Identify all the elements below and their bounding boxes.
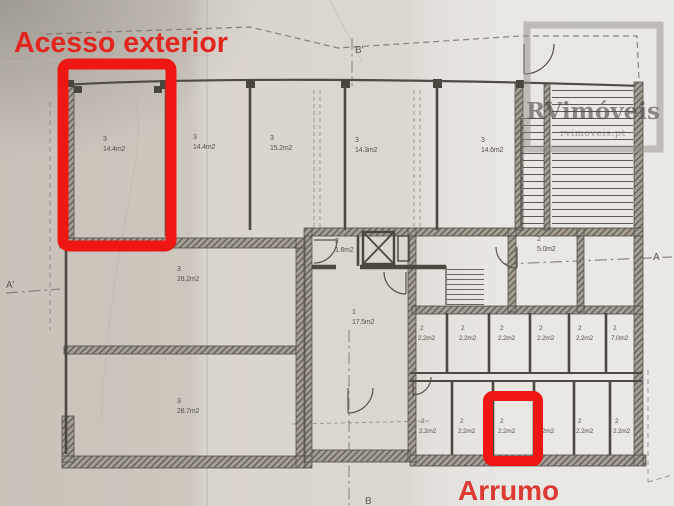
room-label-top-4-unit: 3 [355,137,359,144]
storage-low-5-area: 2.2m2 [576,428,594,435]
room-label-top-1-area: 14.4m2 [103,146,125,153]
storage-low-1-unit: 2 [421,418,425,425]
storage-low-3-area: 2.2m2 [498,428,516,435]
room-label-mid-2-area: 1.6m2 [335,247,354,254]
section-marker-b-top: B' [355,45,364,56]
storage-up-1-unit: 2 [420,325,424,332]
storage-up-6-area: 7.0m2 [611,335,629,342]
room-label-mid-3-unit: 1 [352,309,356,316]
storage-up-4-unit: 2 [539,325,543,332]
room-label-top-2-area: 14.4m2 [193,144,215,151]
storage-up-2-area: 2.2m2 [459,335,477,342]
storage-low-2-unit: 2 [460,418,464,425]
storage-up-3-area: 2.2m2 [498,335,516,342]
storage-up-5-unit: 2 [578,325,582,332]
watermark-brand: RVimóveis [526,98,660,125]
room-label-bottom-1-unit: 3 [177,398,181,405]
floorplan-svg: 3 14.4m2 3 14.4m2 3 15.2m2 3 14.3m2 3 14… [0,0,674,506]
room-label-top-3-unit: 3 [270,135,274,142]
storage-low-3-unit: 2 [500,418,504,425]
storage-up-6-unit: 2 [613,325,617,332]
room-label-top-5-unit: 3 [481,137,485,144]
room-label-top-5-area: 14.6m2 [481,147,503,154]
room-label-top-3-area: 15.2m2 [270,145,292,152]
storage-unit-label: Arrumo [458,475,559,506]
storage-low-6-unit: 2 [615,418,619,425]
room-label-top-2-unit: 3 [193,134,197,141]
watermark-url: rvimoveis.pt [560,128,626,139]
room-label-mid-1-area: 28.2m2 [177,276,199,283]
storage-up-1-area: 2.2m2 [418,335,436,342]
room-label-mid-4-area: 5.0m2 [537,246,556,253]
storage-up-4-area: 2.2m2 [537,335,555,342]
section-marker-a-left: A' [6,280,15,291]
section-marker-a-right: A [653,252,660,263]
room-label-bottom-1-area: 28.7m2 [177,408,199,415]
room-label-mid-4-unit: 2 [537,236,541,243]
storage-low-1-area: 2.2m2 [419,428,437,435]
central-stairs-treads [447,266,484,305]
section-marker-b-bottom: B [365,496,372,506]
room-label-mid-3-area: 17.5m2 [352,319,374,326]
storage-up-5-area: 2.2m2 [576,335,594,342]
room-label-top-4-area: 14.3m2 [355,147,377,154]
storage-low-2-area: 2.2m2 [458,428,476,435]
storage-up-3-unit: 2 [500,325,504,332]
storage-up-2-unit: 2 [461,325,465,332]
room-label-top-1-unit: 3 [103,136,107,143]
room-label-mid-1-unit: 3 [177,266,181,273]
storage-low-6-area: 2.2m2 [613,428,631,435]
exterior-access-label: Acesso exterior [14,27,228,59]
storage-low-5-unit: 2 [578,418,582,425]
room-label-mid-2-unit: 2 [335,238,339,245]
floorplan-photo: 3 14.4m2 3 14.4m2 3 15.2m2 3 14.3m2 3 14… [0,0,674,506]
